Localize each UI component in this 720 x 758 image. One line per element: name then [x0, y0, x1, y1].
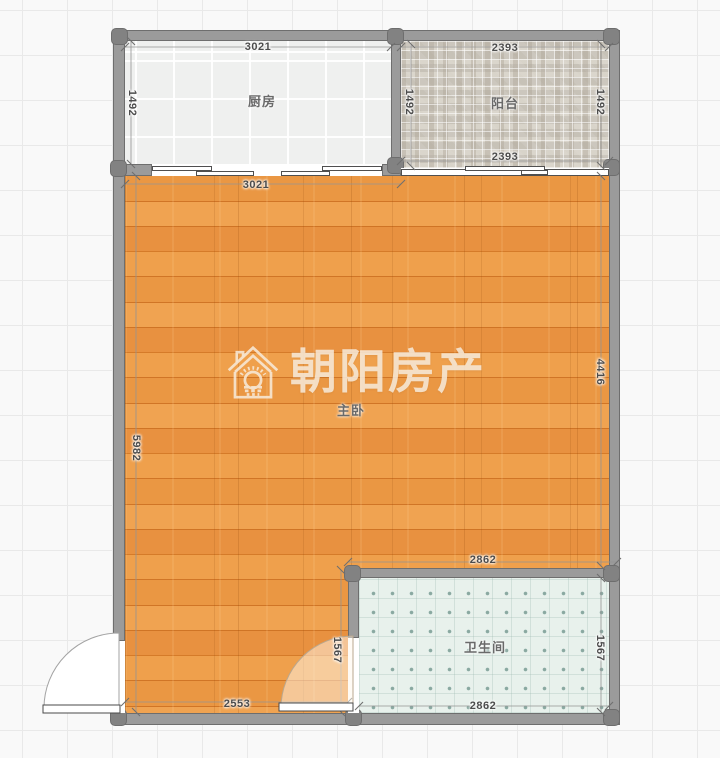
dim-kitchen-left: 1492 — [125, 81, 139, 125]
wall-left — [113, 30, 125, 641]
house-sun-icon — [226, 342, 280, 402]
dim-bedroom-right: 4416 — [593, 350, 607, 394]
wall-bathroom-left — [348, 578, 359, 638]
dim-bathroom-left: 1567 — [330, 628, 344, 672]
entry-door — [43, 633, 120, 713]
watermark-brand: 朝阳房产 — [290, 342, 486, 402]
watermark: 朝阳房产 — [226, 342, 486, 402]
wall-corner-divider-top — [387, 28, 404, 45]
entry-door-opening — [113, 641, 125, 713]
dim-bathroom-right: 1567 — [593, 626, 607, 670]
wall-right — [609, 30, 620, 725]
floor-plan-canvas: 朝阳房产 厨房 阳台 主卧 卫生间 3021 1492 2393 1492 14… — [0, 0, 720, 758]
balcony-slider-panel-2 — [521, 170, 548, 175]
wall-corner-kitchen-left — [110, 160, 127, 177]
dim-bedroom-bottom: 2553 — [215, 697, 259, 711]
kitchen-slider-panel-4 — [322, 166, 382, 171]
dim-bedroom-left: 5982 — [129, 426, 143, 470]
dim-balcony-right: 1492 — [593, 80, 607, 124]
dim-bathroom-top: 2862 — [461, 553, 505, 567]
kitchen-label: 厨房 — [222, 94, 302, 109]
bedroom-label: 主卧 — [311, 403, 391, 418]
wall-bottom — [113, 713, 620, 725]
dim-bedroom-top: 3021 — [234, 178, 278, 192]
wall-corner-top-right — [603, 28, 620, 45]
dim-balcony-left: 1492 — [402, 80, 416, 124]
entry-door-leaf — [43, 705, 120, 713]
wall-kitchen-balcony-divider — [391, 30, 401, 170]
wall-kitchen-door-stub-left — [125, 164, 152, 176]
dim-kitchen-top: 3021 — [236, 40, 280, 54]
balcony-label: 阳台 — [465, 96, 545, 111]
dim-balcony-top: 2393 — [483, 41, 527, 55]
wall-corner-top-left — [111, 28, 128, 45]
wall-corner-bottom-right — [603, 709, 620, 726]
bathroom-door-opening — [348, 638, 359, 713]
wall-bathroom-top — [348, 568, 609, 578]
kitchen-slider-panel-3 — [281, 171, 330, 176]
dim-bathroom-bottom: 2862 — [461, 699, 505, 713]
kitchen-slider-panel-2 — [196, 171, 254, 176]
bathroom-label: 卫生间 — [445, 640, 525, 655]
wall-corner-bathroom-top-left — [344, 565, 361, 582]
dim-balcony-bottom: 2393 — [483, 150, 527, 164]
wall-top — [113, 30, 620, 41]
wall-corner-bathroom-top-right — [603, 565, 620, 582]
